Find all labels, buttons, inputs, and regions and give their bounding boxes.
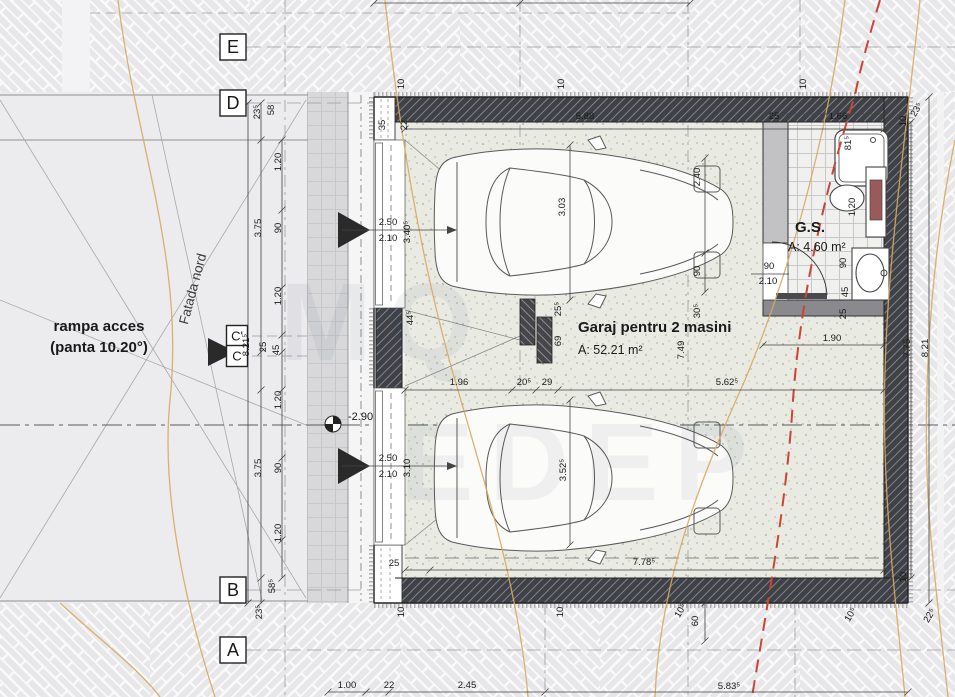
grid-axis-bubble: D [220,90,246,116]
column-2 [537,317,552,363]
dimension-label: 1.20 [273,287,284,306]
dimension-label: 3.03 [557,198,568,217]
dimension-label: 5.88 [576,111,595,122]
level-value: -2.90 [348,411,373,423]
dimension-label: 25 [769,111,780,122]
dimension-label: 3.40⁵ [402,221,413,243]
dimension-label: 1.20 [273,524,284,543]
dimension-label: 90 [838,258,849,269]
dimension-label: 1.66 [829,111,848,122]
dimension-label: 58⁵ [267,579,278,594]
garage-room-label: Garaj pentru 2 masini [578,319,731,336]
bathroom-wall-west [763,122,788,243]
dimension-label: 10 [555,607,566,618]
dimension-label: 2.45 [458,680,477,691]
dimension-label: 8.21 [920,339,931,358]
dimension-label: 10 [396,79,407,90]
bathroom-room-label: G.S. [795,219,825,236]
dimension-label: 2.40 [692,168,703,187]
floor-plan-canvas: MQ EDEP -2.90 Garaj pentru 2 masini A: 5… [0,0,955,697]
dimension-label: 25⁵ [553,302,564,317]
dimension-label: 81⁵ [843,136,854,151]
svg-text:EDEP: EDEP [400,401,764,524]
wall-south [395,578,908,603]
grid-axis-label: B [227,580,239,600]
ramp-label-line1: rampa acces [54,318,145,335]
dimension-label: 10 [798,79,809,90]
dimension-label: 23⁵ [254,605,265,620]
dimension-label: 1.00 [338,680,357,691]
dimension-label: 90 [764,261,775,272]
dimension-label: 7.49 [676,341,687,360]
dimension-label: 3.52⁵ [558,459,569,481]
dimension-label: 58 [266,105,277,116]
dimension-label: 1.20 [273,153,284,172]
dimension-label: 2.50 [379,217,398,228]
grid-axis-label: A [227,640,239,660]
dimension-label: 3.10 [402,459,413,478]
dimension-label: 90 [273,463,284,474]
bathroom-area-label: A: 4.60 m² [788,240,846,254]
ramp-label-line2: (panta 10.20°) [50,339,148,356]
dimension-label: 60 [690,616,701,627]
dimension-label: 3.75 [253,459,264,478]
dimension-label: 5.62⁵ [716,377,738,388]
bathroom-door-leaf [776,293,827,299]
dimension-label: 44⁵ [405,311,416,326]
dimension-label: 69 [553,336,564,347]
dimension-label: 25 [389,558,400,569]
dimension-label: 2.50 [379,453,398,464]
dimension-label: 20⁵ [517,377,532,388]
dimension-label: 10 [898,116,909,127]
bathroom-wall-south [763,300,884,316]
garage-area-label: A: 52.21 m² [578,343,643,357]
dimension-label: 1.20 [847,198,858,217]
dimension-label: 1.90 [823,333,842,344]
dimension-label: 1.96 [450,377,469,388]
dimension-label: 7.78⁵ [633,557,655,568]
dimension-label: 7.75 [902,339,913,358]
dimension-label: 3.75 [253,219,264,238]
dimension-label: 2.10 [759,276,778,287]
dimension-label: 35 [377,120,388,131]
dimension-label: 45 [840,287,851,298]
dimension-label: 90 [692,266,703,277]
dimension-label: 2.10 [379,233,398,244]
dimension-label: 22 [384,680,395,691]
dimension-label: 10 [396,607,407,618]
floor-plan-drawing: MQ EDEP -2.90 Garaj pentru 2 masini A: 5… [0,0,955,697]
dimension-label: 8.21⁵ [241,334,252,356]
sink-basin [856,254,884,292]
grid-axis-bubble: B [220,577,246,603]
grid-axis-label: E [227,37,239,57]
svg-text:MQ: MQ [280,261,489,384]
grid-axis-bubble: E [220,34,246,60]
wall-corner-sw [374,545,402,603]
column-1 [520,299,535,345]
dimension-label: 23⁵ [252,105,263,120]
dimension-label: 29 [542,377,553,388]
dimension-label: 90 [273,223,284,234]
dimension-label: 25 [838,309,849,320]
dimension-label: 5.83⁵ [718,681,740,692]
dimension-label: 10 [556,79,567,90]
grid-axis-label: D [227,93,240,113]
dimension-label: 25 [258,342,269,353]
wall-corner-nw [374,97,395,140]
dimension-label: 45 [271,345,282,356]
dimension-label: 22 [399,120,410,131]
dimension-label: 2.10 [379,469,398,480]
dimension-label: 1.20 [273,391,284,410]
grid-axis-bubble: A [220,637,246,663]
dimension-label: 10 [898,572,909,583]
garage-door-leaf-2 [376,391,383,542]
dimension-label: 30⁵ [692,304,703,319]
